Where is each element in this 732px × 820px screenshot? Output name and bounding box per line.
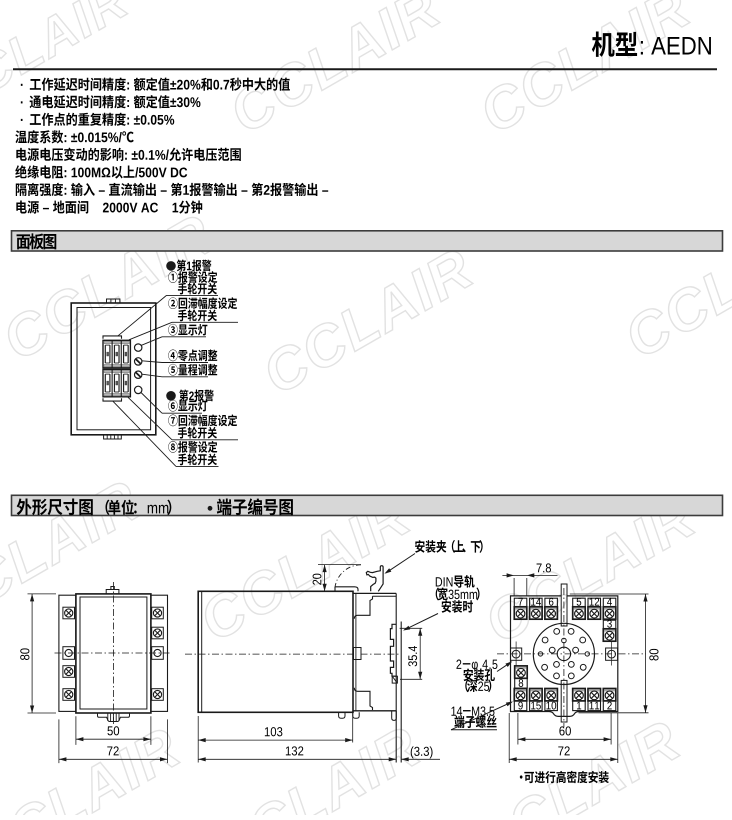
- svg-text:CCLAIR: CCLAIR: [219, 0, 452, 146]
- svg-text:CCLAIR: CCLAIR: [614, 199, 732, 371]
- svg-text:CCLAIR: CCLAIR: [469, 0, 702, 146]
- svg-text:CCLAIR: CCLAIR: [0, 714, 192, 815]
- svg-text:CCLAIR: CCLAIR: [252, 235, 485, 407]
